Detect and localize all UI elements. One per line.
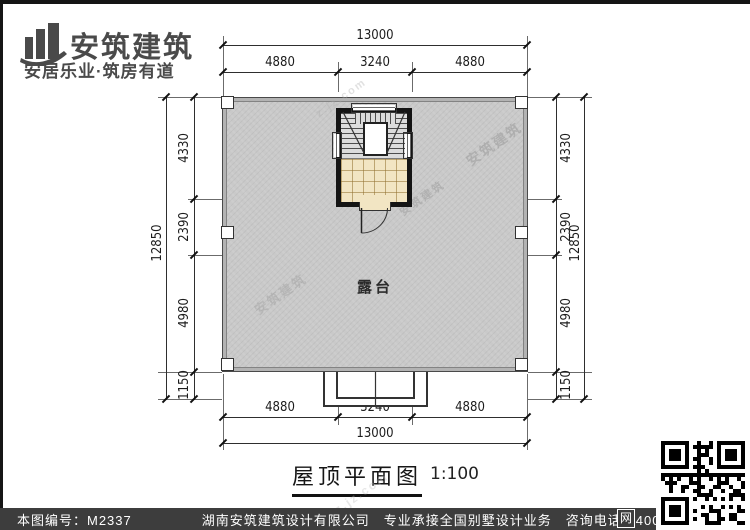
extension-line	[223, 374, 224, 450]
footer-bar: 本图编号：M2337 湖南安筑建筑设计有限公司 专业承接全国别墅设计业务 咨询电…	[0, 508, 750, 530]
dim-bottom-seg1: 4880	[253, 400, 307, 415]
window-left	[332, 132, 342, 159]
footer-company: 湖南安筑建筑设计有限公司	[202, 510, 370, 529]
dim-top-seg3: 4880	[443, 55, 497, 70]
dimension-line-left-segments	[194, 97, 195, 399]
door-threshold	[359, 202, 391, 211]
sheet-left-border	[0, 0, 3, 530]
dimension-line-right-segments	[556, 97, 557, 399]
window-right	[403, 132, 413, 159]
dim-right-seg4: 1150	[559, 358, 573, 412]
dim-right-overall: 12850	[568, 216, 582, 270]
dimension-line-left-overall	[166, 97, 167, 399]
stair-landing-divider	[341, 158, 407, 159]
dimension-line-top-segments	[223, 72, 527, 73]
dim-top-seg2: 3240	[348, 55, 402, 70]
column-bottom-left	[221, 358, 234, 371]
dim-left-seg1: 4330	[177, 121, 191, 175]
dim-bottom-overall: 13000	[348, 426, 402, 441]
stair-opening	[363, 122, 388, 156]
dim-bottom-seg3: 4880	[443, 400, 497, 415]
dimension-line-bottom-segments	[223, 417, 527, 418]
company-tagline: 安居乐业·筑房有道	[24, 57, 175, 82]
dimension-line-top-overall	[223, 45, 527, 46]
dim-top-overall: 13000	[348, 28, 402, 43]
dim-left-seg3: 4980	[177, 286, 191, 340]
extension-line	[412, 62, 413, 92]
dim-top-seg1: 4880	[253, 55, 307, 70]
dim-left-overall: 12850	[150, 216, 164, 270]
dim-right-seg1: 4330	[559, 121, 573, 175]
canopy-outline-inner	[336, 372, 415, 399]
room-label-terrace: 露台	[345, 276, 405, 297]
drawing-number: 本图编号：M2337	[17, 510, 132, 529]
dim-left-seg2: 2390	[177, 200, 191, 254]
column-mid-left	[221, 226, 234, 239]
column-top-left	[221, 96, 234, 109]
column-top-right	[515, 96, 528, 109]
dim-left-seg4: 1150	[177, 358, 191, 412]
sheet-scale: 1:100	[430, 464, 479, 484]
footer-service: 专业承接全国别墅设计业务	[384, 510, 552, 529]
qr-code	[656, 436, 750, 530]
window-top	[351, 103, 397, 113]
extension-line	[527, 374, 528, 450]
dimension-line-right-overall	[584, 97, 585, 399]
dimension-line-bottom-overall	[223, 443, 527, 444]
dim-right-seg3: 4980	[559, 286, 573, 340]
web-badge: 网	[617, 509, 635, 528]
drawing-sheet: 安筑建筑 安居乐业·筑房有道 安筑建筑 安筑建筑 安筑建筑 z.jz.com z…	[0, 0, 750, 530]
sheet-top-border	[0, 0, 750, 4]
extension-line	[338, 62, 339, 92]
column-bottom-right	[515, 358, 528, 371]
column-mid-right	[515, 226, 528, 239]
